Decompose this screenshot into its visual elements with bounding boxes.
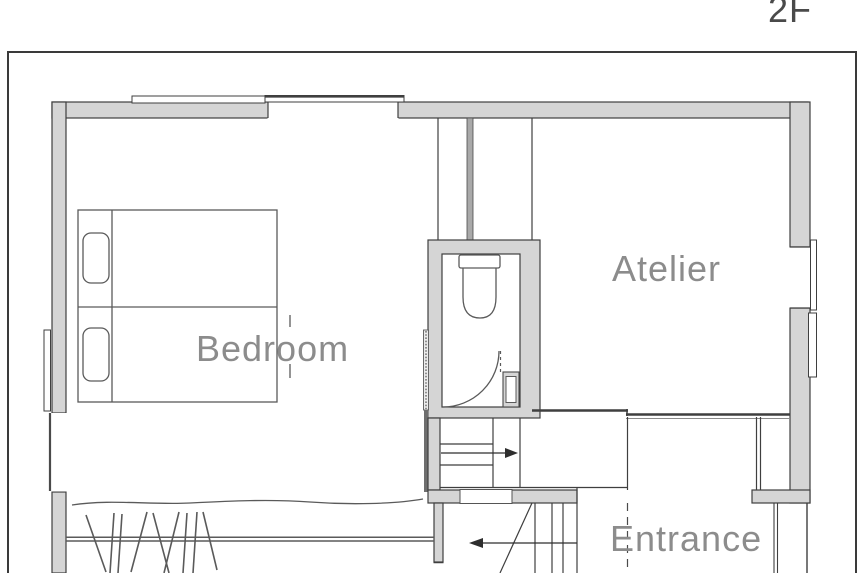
north-wall bbox=[52, 102, 808, 118]
west-window-opening bbox=[51, 413, 68, 492]
west-outer-sash bbox=[44, 330, 51, 411]
bedroom-label: Bedroom bbox=[196, 328, 349, 369]
pillow-top bbox=[83, 233, 109, 283]
east-wall-lower bbox=[790, 308, 810, 503]
east-outer-ledge bbox=[809, 313, 817, 377]
corridor-south-wall bbox=[428, 490, 577, 504]
entrance-label: Entrance bbox=[610, 518, 762, 559]
up-arrow-head bbox=[505, 448, 518, 458]
entrance-north-band bbox=[752, 490, 810, 503]
hand-basin-inner bbox=[506, 377, 516, 403]
toilet-tank bbox=[459, 255, 500, 268]
west-wall-lower bbox=[52, 492, 66, 573]
stair-west-wall bbox=[434, 503, 443, 562]
partition-wall bbox=[467, 118, 473, 240]
north-eave-ledge bbox=[132, 96, 265, 103]
floor-plan-page: 2F bbox=[0, 0, 860, 573]
toilet-room bbox=[428, 240, 540, 418]
east-wall-upper bbox=[790, 102, 810, 247]
corridor-west-wall bbox=[428, 418, 440, 490]
north-window-opening bbox=[268, 101, 399, 119]
doorway-opening bbox=[460, 490, 512, 504]
east-outer-sash bbox=[811, 240, 817, 310]
down-arrow-head bbox=[469, 538, 483, 548]
atelier-label: Atelier bbox=[612, 248, 721, 289]
east-window-opening bbox=[789, 248, 811, 308]
hatch-marks bbox=[86, 512, 217, 573]
wavy-break-line bbox=[72, 499, 423, 505]
center-partition bbox=[438, 118, 532, 240]
break-line-area bbox=[66, 499, 434, 573]
bed bbox=[78, 210, 290, 402]
west-wall-upper bbox=[52, 102, 66, 413]
floor-label: 2F bbox=[768, 0, 812, 30]
stair-diagonal bbox=[500, 503, 532, 573]
floor-plan-svg: 2F bbox=[0, 0, 860, 573]
staircase-upper bbox=[428, 418, 627, 490]
pillow-bottom bbox=[83, 328, 109, 381]
atelier-south-wall bbox=[532, 409, 790, 419]
